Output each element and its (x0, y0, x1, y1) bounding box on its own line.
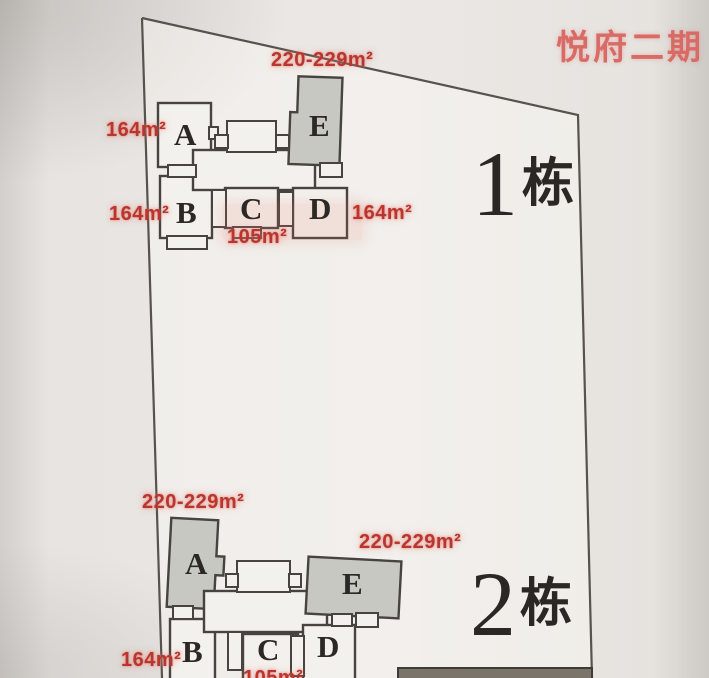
b2-connector (289, 574, 301, 587)
b1-area-e: 220-229m² (271, 49, 373, 72)
b1-area-a: 164m² (106, 119, 166, 142)
b1-connector (168, 165, 196, 177)
bottom-edge-structure (398, 668, 592, 678)
project-title: 悦府二期 (556, 20, 704, 69)
b1-connector (167, 236, 207, 249)
b1-unit-a-label: A (174, 119, 196, 150)
b2-area-a: 220-229m² (142, 491, 244, 514)
building-1-suffix: 栋 (522, 156, 574, 213)
b2-area-b: 164m² (121, 649, 181, 672)
b2-unit-a-label: A (185, 548, 207, 579)
b2-top-core-shape (237, 561, 290, 592)
building-1-number: 1 (472, 133, 518, 235)
b1-connector (215, 135, 228, 148)
building-2-label: 2栋 (470, 558, 568, 650)
b1-unit-d-label: D (309, 193, 331, 224)
b2-connector (228, 632, 242, 670)
b2-connector (356, 613, 378, 627)
b2-unit-e-label: E (342, 568, 363, 599)
b2-area-c: 105m² (243, 667, 303, 678)
b2-connector (226, 574, 238, 587)
b1-top-core-shape (227, 121, 276, 152)
b1-unit-b-label: B (176, 197, 197, 228)
b1-unit-e-label: E (309, 110, 330, 141)
building-2-number: 2 (470, 553, 516, 655)
building-2-suffix: 栋 (520, 576, 572, 633)
b2-unit-c-label: C (257, 634, 279, 665)
b1-connector (320, 163, 342, 177)
building-1-label: 1栋 (472, 138, 570, 230)
b1-area-d: 164m² (352, 202, 412, 225)
b2-connector (332, 614, 352, 626)
b1-connector (276, 135, 289, 148)
b1-area-b: 164m² (109, 203, 169, 226)
b1-area-c: 105m² (227, 226, 287, 249)
b2-connector (173, 606, 193, 619)
site-plan-photo: 悦府二期 1栋 2栋 A B C D E 220-229m² 164m² 164… (0, 0, 709, 678)
b1-unit-c-label: C (240, 193, 262, 224)
b2-area-e: 220-229m² (359, 531, 461, 554)
b2-unit-d-label: D (317, 631, 339, 662)
b2-unit-b-label: B (182, 636, 203, 667)
